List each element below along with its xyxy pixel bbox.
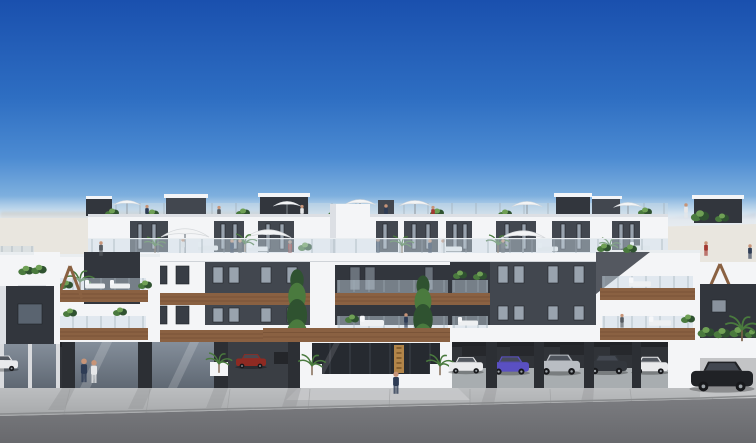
entrance-sign bbox=[394, 345, 404, 373]
dark-panel-right bbox=[490, 262, 596, 325]
right-end-volume bbox=[698, 262, 756, 362]
architectural-render bbox=[0, 0, 756, 443]
render-viewport bbox=[0, 0, 756, 443]
entrance-apron bbox=[286, 388, 470, 400]
garage-bay-left bbox=[206, 342, 301, 388]
storefronts-left bbox=[0, 342, 214, 388]
entrance-canopy bbox=[263, 328, 450, 342]
